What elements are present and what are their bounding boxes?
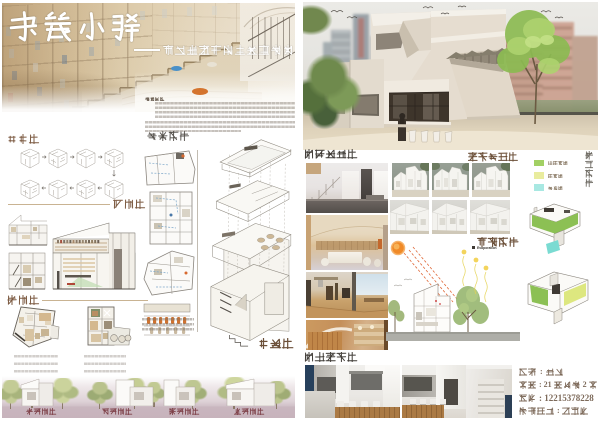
svg-text:Evaporation: Evaporation [477, 246, 497, 250]
